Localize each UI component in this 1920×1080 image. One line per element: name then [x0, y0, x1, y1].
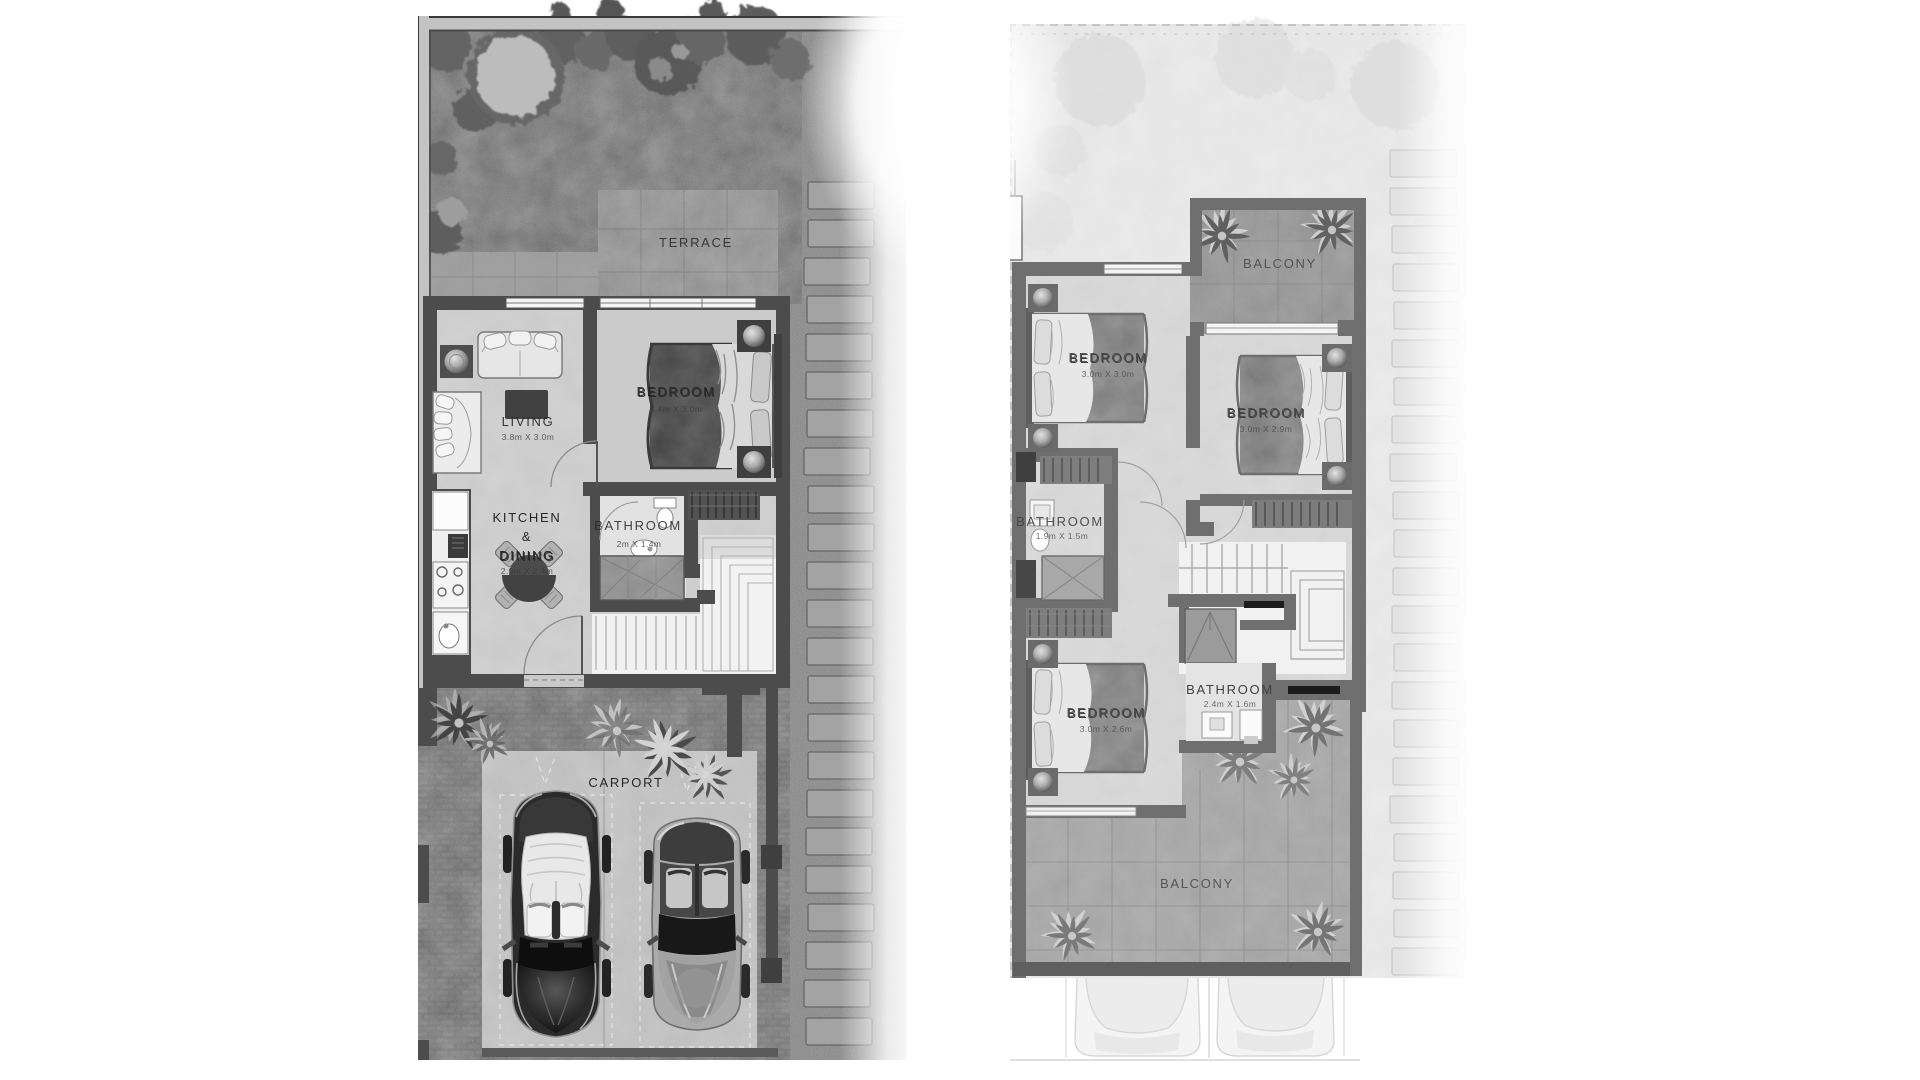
svg-text:3.0m X 2.6m: 3.0m X 2.6m — [1080, 724, 1133, 734]
svg-text:TERRACE: TERRACE — [659, 235, 733, 250]
svg-text:2m X 1.4m: 2m X 1.4m — [617, 539, 662, 549]
svg-text:LIVING: LIVING — [502, 414, 555, 429]
svg-text:3.4m X 3.0m: 3.4m X 3.0m — [650, 404, 703, 414]
svg-text:&: & — [522, 529, 532, 544]
svg-text:BEDROOM: BEDROOM — [1226, 405, 1305, 420]
svg-text:BEDROOM: BEDROOM — [1068, 350, 1147, 365]
svg-text:BEDROOM: BEDROOM — [1066, 705, 1145, 720]
svg-text:BEDROOM: BEDROOM — [636, 384, 715, 399]
svg-text:KITCHEN: KITCHEN — [493, 510, 562, 525]
svg-text:1.9m X 1.5m: 1.9m X 1.5m — [1036, 531, 1089, 541]
svg-text:DINING: DINING — [499, 548, 555, 563]
svg-text:BALCONY: BALCONY — [1160, 876, 1234, 891]
svg-text:2.9m X 2.4m: 2.9m X 2.4m — [501, 566, 554, 576]
svg-text:CARPORT: CARPORT — [588, 775, 663, 790]
svg-text:2.4m X 1.6m: 2.4m X 1.6m — [1204, 699, 1257, 709]
svg-text:3.0m X 2.9m: 3.0m X 2.9m — [1240, 424, 1293, 434]
svg-text:BATHROOM: BATHROOM — [1186, 682, 1274, 697]
svg-text:BATHROOM: BATHROOM — [1016, 514, 1104, 529]
svg-text:BALCONY: BALCONY — [1243, 256, 1317, 271]
svg-text:BATHROOM: BATHROOM — [594, 518, 682, 533]
svg-text:3.0m X 3.0m: 3.0m X 3.0m — [1082, 369, 1135, 379]
svg-text:3.8m X 3.0m: 3.8m X 3.0m — [502, 432, 555, 442]
